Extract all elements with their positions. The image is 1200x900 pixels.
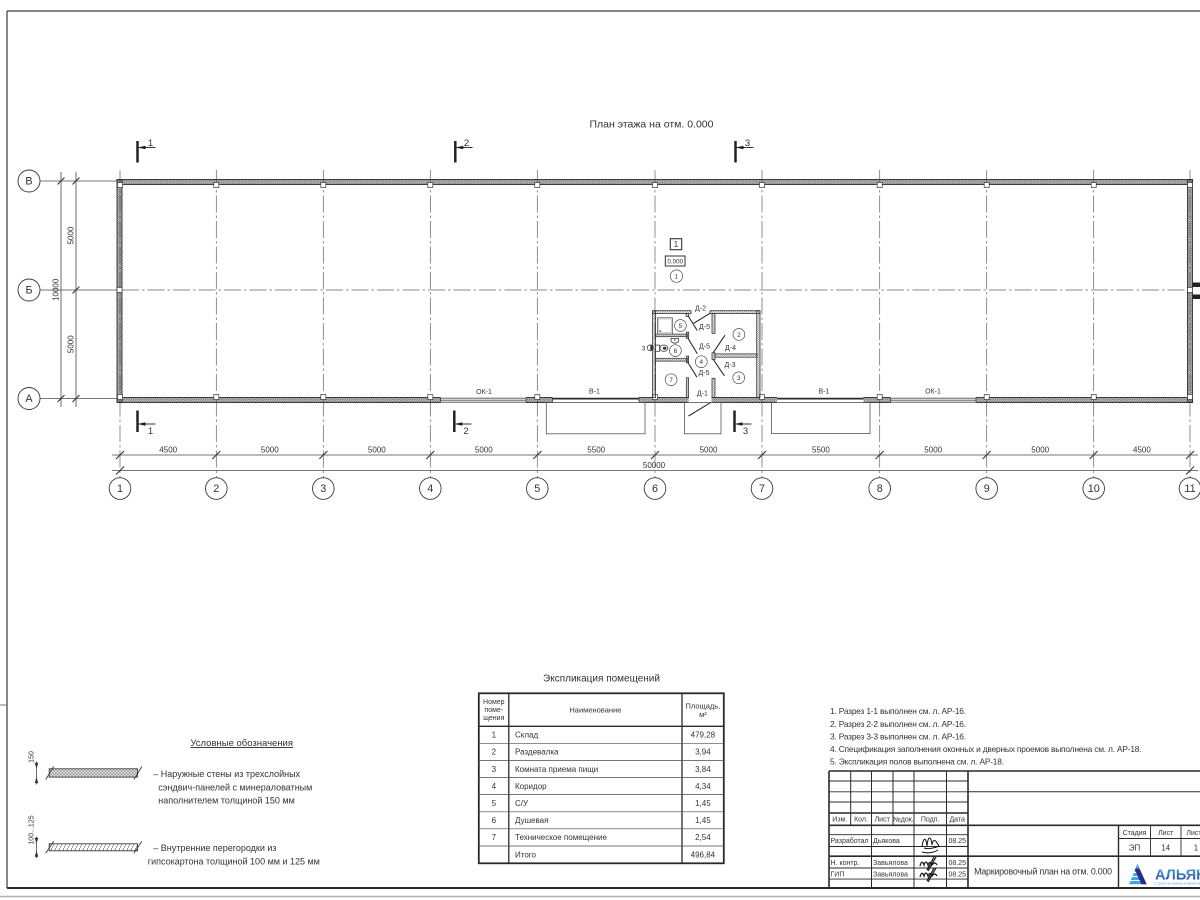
svg-text:9: 9 xyxy=(984,483,990,495)
svg-text:В-1: В-1 xyxy=(589,389,600,396)
svg-text:ЭП: ЭП xyxy=(1129,844,1141,853)
svg-text:С/У: С/У xyxy=(515,799,529,808)
svg-text:Н. контр.: Н. контр. xyxy=(831,860,860,867)
svg-text:50000: 50000 xyxy=(643,461,666,470)
svg-text:Кол.: Кол. xyxy=(854,817,868,824)
svg-text:8: 8 xyxy=(877,483,883,495)
svg-text:3: 3 xyxy=(492,765,497,774)
svg-text:Комната приема пищи: Комната приема пищи xyxy=(515,765,598,774)
svg-text:А: А xyxy=(25,393,33,405)
svg-text:Лист: Лист xyxy=(1158,830,1174,837)
svg-text:Б: Б xyxy=(25,284,32,296)
svg-text:5: 5 xyxy=(534,483,540,495)
svg-text:Д-5: Д-5 xyxy=(699,324,710,331)
svg-text:5000: 5000 xyxy=(475,446,493,455)
svg-text:5. Экспликация полов выполнена: 5. Экспликация полов выполнена см. л. АР… xyxy=(830,757,1004,767)
svg-text:3: 3 xyxy=(737,375,741,382)
svg-text:Склад: Склад xyxy=(515,731,538,740)
svg-text:1: 1 xyxy=(148,426,153,437)
svg-text:1: 1 xyxy=(492,731,497,740)
svg-text:Завьялова: Завьялова xyxy=(873,860,908,867)
svg-text:4: 4 xyxy=(492,782,497,791)
svg-text:5000: 5000 xyxy=(700,446,718,455)
svg-text:1: 1 xyxy=(1194,844,1199,853)
svg-text:№док.: №док. xyxy=(893,817,914,824)
svg-text:ГИП: ГИП xyxy=(831,871,845,878)
svg-text:11: 11 xyxy=(1184,483,1195,495)
svg-text:2: 2 xyxy=(737,332,741,339)
svg-text:479,28: 479,28 xyxy=(691,731,716,740)
svg-text:Д-2: Д-2 xyxy=(695,305,706,312)
svg-text:7: 7 xyxy=(492,833,497,842)
svg-text:Стадия: Стадия xyxy=(1123,830,1147,837)
svg-text:Маркировочный план на отм. 0.0: Маркировочный план на отм. 0.000 xyxy=(974,867,1112,877)
svg-text:2: 2 xyxy=(464,138,469,149)
svg-text:6: 6 xyxy=(652,483,658,495)
svg-text:ОК-1: ОК-1 xyxy=(476,389,492,396)
svg-text:5000: 5000 xyxy=(261,446,279,455)
svg-text:2: 2 xyxy=(492,748,497,757)
svg-text:2,54: 2,54 xyxy=(695,833,711,842)
svg-text:Условные обозначения: Условные обозначения xyxy=(190,738,293,749)
svg-text:Техническое помещение: Техническое помещение xyxy=(515,833,607,842)
svg-text:1: 1 xyxy=(117,483,123,495)
svg-text:гипсокартона толщиной 100 мм и: гипсокартона толщиной 100 мм и 125 мм xyxy=(148,856,320,866)
svg-text:1. Разрез 1-1 выполнен см. л.: 1. Разрез 1-1 выполнен см. л. АР-16. xyxy=(830,706,966,716)
svg-text:Номер: Номер xyxy=(483,699,505,706)
svg-text:5500: 5500 xyxy=(812,446,830,455)
svg-text:Экспликация помещений: Экспликация помещений xyxy=(543,674,660,685)
svg-text:150: 150 xyxy=(29,751,36,763)
svg-text:З: З xyxy=(642,346,646,353)
svg-text:строительная компания: строительная компания xyxy=(1155,881,1200,885)
svg-text:3,84: 3,84 xyxy=(695,765,711,774)
svg-text:14: 14 xyxy=(1161,844,1170,853)
svg-text:План этажа на отм. 0.000: План этажа на отм. 0.000 xyxy=(590,119,714,131)
svg-text:100...125: 100...125 xyxy=(29,815,36,844)
svg-text:5500: 5500 xyxy=(587,446,605,455)
svg-text:Д-5: Д-5 xyxy=(699,344,710,351)
svg-text:Лист: Лист xyxy=(875,817,891,824)
svg-text:4: 4 xyxy=(427,483,433,495)
svg-text:м²: м² xyxy=(699,710,707,719)
svg-text:В-1: В-1 xyxy=(819,388,830,395)
svg-text:7: 7 xyxy=(759,483,765,495)
svg-text:0.000: 0.000 xyxy=(667,259,683,266)
svg-text:– Внутренние перегородки из: – Внутренние перегородки из xyxy=(153,843,276,853)
svg-text:ОК-1: ОК-1 xyxy=(925,388,941,395)
svg-text:5000: 5000 xyxy=(368,446,386,455)
svg-text:1: 1 xyxy=(674,240,679,249)
svg-text:7: 7 xyxy=(669,377,673,384)
svg-text:Раздевалка: Раздевалка xyxy=(515,748,559,757)
svg-text:Душевая: Душевая xyxy=(515,816,548,825)
svg-text:Изм.: Изм. xyxy=(832,817,847,824)
svg-text:Коридор: Коридор xyxy=(515,782,547,791)
svg-text:Завьялова: Завьялова xyxy=(873,871,908,878)
svg-text:4: 4 xyxy=(700,359,704,366)
svg-text:Д-4: Д-4 xyxy=(725,345,736,352)
svg-text:08.25: 08.25 xyxy=(949,860,967,867)
svg-text:10000: 10000 xyxy=(52,278,61,301)
svg-text:1: 1 xyxy=(675,274,679,281)
svg-text:5: 5 xyxy=(492,799,497,808)
svg-text:Д-5: Д-5 xyxy=(699,370,710,377)
svg-text:щения: щения xyxy=(483,715,504,722)
svg-text:6: 6 xyxy=(674,348,678,355)
svg-text:сэндвич-панелей с минераловатн: сэндвич-панелей с минераловатным xyxy=(158,782,312,792)
svg-text:4500: 4500 xyxy=(1133,446,1151,455)
svg-text:Разработал: Разработал xyxy=(831,837,869,845)
svg-text:4,34: 4,34 xyxy=(695,782,711,791)
svg-text:Подп.: Подп. xyxy=(921,817,940,824)
svg-text:1,45: 1,45 xyxy=(695,816,711,825)
svg-text:Лист: Лист xyxy=(1186,830,1200,837)
svg-text:Наименование: Наименование xyxy=(569,706,621,715)
svg-text:3: 3 xyxy=(320,483,326,495)
svg-text:1,45: 1,45 xyxy=(695,799,711,808)
svg-text:4. Спецификация заполнения око: 4. Спецификация заполнения оконных и две… xyxy=(830,744,1141,754)
svg-text:3. Разрез 3-3 выполнен см. л.: 3. Разрез 3-3 выполнен см. л. АР-16. xyxy=(830,731,966,741)
svg-text:10: 10 xyxy=(1088,483,1100,495)
svg-text:2. Разрез 2-2 выполнен см. л.: 2. Разрез 2-2 выполнен см. л. АР-16. xyxy=(830,719,966,729)
svg-text:Дата: Дата xyxy=(949,817,965,824)
svg-text:496,84: 496,84 xyxy=(691,851,716,860)
svg-text:6: 6 xyxy=(492,816,497,825)
svg-text:4500: 4500 xyxy=(159,446,177,455)
svg-text:В: В xyxy=(25,175,32,187)
svg-text:5000: 5000 xyxy=(1031,446,1049,455)
svg-text:– Наружные стены из трехслойны: – Наружные стены из трехслойных xyxy=(153,769,300,779)
svg-text:2: 2 xyxy=(463,426,468,437)
svg-text:Дьякова: Дьякова xyxy=(873,838,900,845)
svg-text:наполнителем толщиной 150 мм: наполнителем толщиной 150 мм xyxy=(158,796,294,806)
svg-text:Д-1: Д-1 xyxy=(697,391,708,398)
svg-text:5000: 5000 xyxy=(67,335,76,353)
svg-text:08.25: 08.25 xyxy=(949,871,967,878)
svg-text:поме-: поме- xyxy=(484,707,503,714)
svg-text:2: 2 xyxy=(213,483,219,495)
svg-text:Д-3: Д-3 xyxy=(725,362,736,369)
svg-text:5000: 5000 xyxy=(924,446,942,455)
svg-text:3,94: 3,94 xyxy=(695,748,711,757)
svg-text:08.25: 08.25 xyxy=(949,838,967,845)
svg-text:5: 5 xyxy=(679,323,683,330)
svg-text:3: 3 xyxy=(745,138,750,149)
svg-text:3: 3 xyxy=(743,426,748,437)
svg-text:Итого: Итого xyxy=(515,851,537,860)
svg-text:1: 1 xyxy=(148,138,153,149)
svg-text:5000: 5000 xyxy=(67,226,76,244)
